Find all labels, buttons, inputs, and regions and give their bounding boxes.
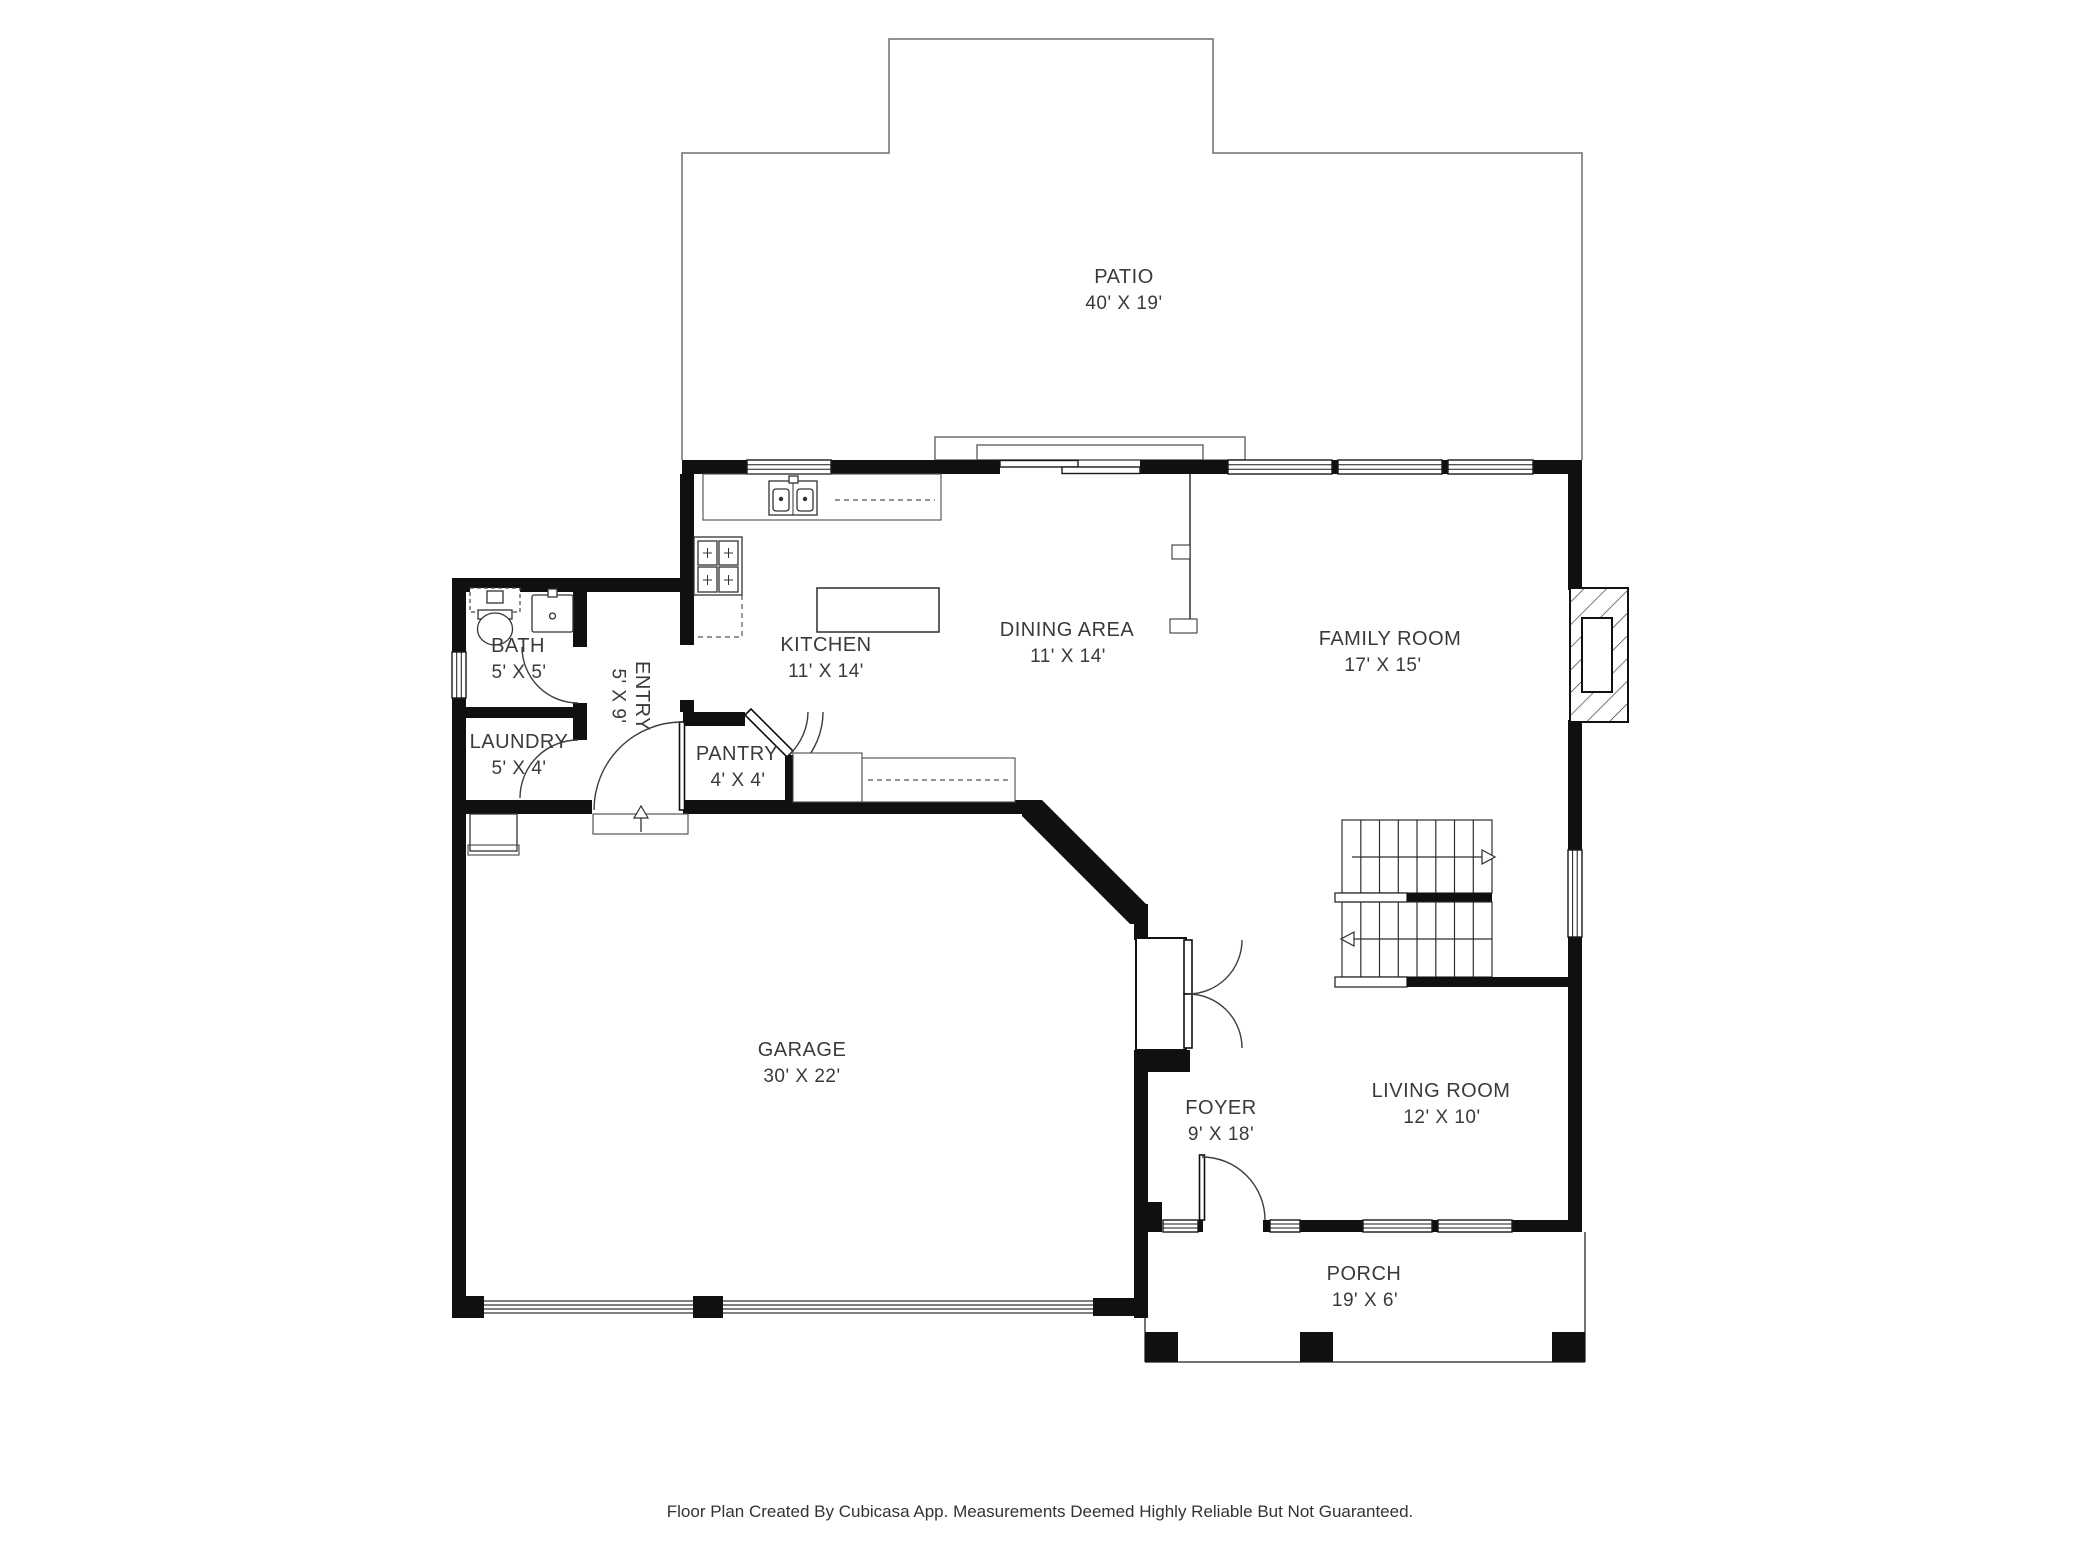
room-dims-living: 12' X 10' — [1403, 1107, 1480, 1128]
family-room-window-icon — [1228, 460, 1332, 474]
room-label-porch: PORCH — [1327, 1263, 1402, 1285]
kitchen-sink-icon — [769, 476, 817, 515]
kitchen-island — [817, 588, 939, 632]
room-dims-dining: 11' X 14' — [1030, 646, 1106, 667]
entry-arrow-icon — [634, 806, 648, 818]
room-label-dining: DINING AREA — [1000, 619, 1135, 641]
room-dims-entry: 5' X 9' — [608, 668, 629, 723]
garage-doors-icon — [484, 1301, 1093, 1313]
footer-disclaimer: Floor Plan Created By Cubicasa App. Meas… — [667, 1502, 1414, 1521]
room-label-living: LIVING ROOM — [1372, 1080, 1511, 1102]
bath-sink-icon — [532, 589, 573, 632]
stair-window-icon — [1568, 850, 1582, 937]
room-dims-patio: 40' X 19' — [1085, 293, 1162, 314]
room-dims-laundry: 5' X 4' — [491, 758, 546, 779]
living-room-window-icon — [1438, 1220, 1512, 1232]
water-heater-icon — [468, 814, 519, 855]
living-room-window-icon — [1363, 1220, 1432, 1232]
porch-pillar — [1552, 1332, 1585, 1362]
porch-pillar — [1145, 1332, 1178, 1362]
staircase — [1335, 820, 1572, 987]
room-label-foyer: FOYER — [1185, 1097, 1256, 1119]
front-door — [1200, 1155, 1266, 1220]
patio-steps — [935, 437, 1245, 460]
room-dims-garage: 30' X 22' — [763, 1066, 840, 1087]
patio-sliding-door-icon — [1000, 461, 1140, 474]
room-label-patio: PATIO — [1094, 266, 1154, 288]
dining-partial-wall — [1170, 474, 1197, 633]
kitchen-window-icon — [747, 460, 831, 474]
room-label-laundry: LAUNDRY — [470, 731, 569, 753]
garage-walls — [452, 1296, 1145, 1318]
foyer-window-icon — [1270, 1220, 1300, 1232]
entry-step — [593, 806, 688, 834]
room-dims-foyer: 9' X 18' — [1188, 1124, 1254, 1145]
room-label-kitchen: KITCHEN — [780, 634, 871, 656]
floor-plan: PATIO 40' X 19' KITCHEN 11' X 14' DINING… — [0, 0, 2080, 1560]
patio-outline — [682, 39, 1582, 460]
room-dims-kitchen: 11' X 14' — [788, 661, 864, 682]
room-dims-family: 17' X 15' — [1344, 655, 1421, 676]
room-dims-porch: 19' X 6' — [1332, 1290, 1398, 1311]
room-label-bath: BATH — [491, 635, 545, 657]
family-room-window-icon — [1448, 460, 1533, 474]
room-label-family: FAMILY ROOM — [1319, 628, 1462, 650]
room-label-pantry: PANTRY — [696, 743, 778, 765]
room-dims-bath: 5' X 5' — [491, 662, 546, 683]
entry-door — [594, 722, 685, 810]
room-label-entry: ENTRY — [631, 661, 653, 731]
bath-window-icon — [452, 652, 466, 698]
cooktop-icon — [694, 537, 742, 595]
foyer-closet — [1136, 938, 1242, 1050]
porch-pillars — [1145, 1332, 1585, 1362]
porch-pillar — [1300, 1332, 1333, 1362]
fireplace-icon — [1570, 588, 1628, 722]
foyer-window-icon — [1163, 1220, 1198, 1232]
family-room-window-icon — [1338, 460, 1442, 474]
dining-counter — [793, 753, 1015, 802]
room-dims-pantry: 4' X 4' — [710, 770, 765, 791]
room-label-garage: GARAGE — [758, 1039, 847, 1061]
